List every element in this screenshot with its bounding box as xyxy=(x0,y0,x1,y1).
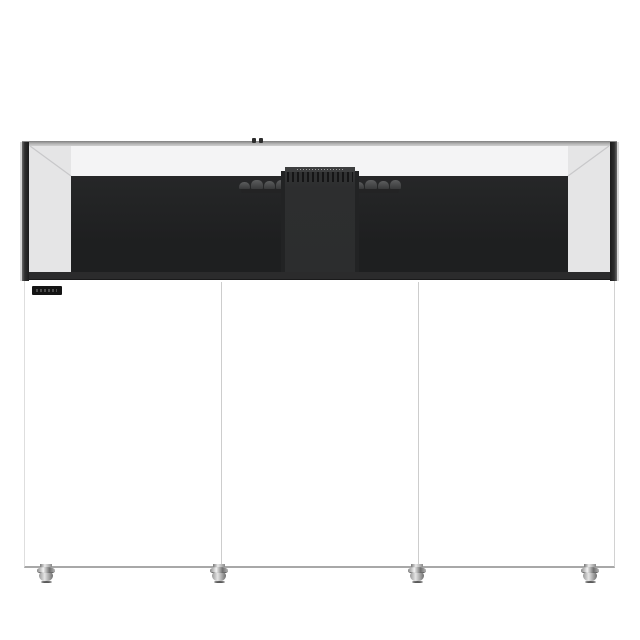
leveling-foot xyxy=(581,564,599,584)
brand-badge-text xyxy=(36,289,57,292)
overflow-comb-teeth xyxy=(287,172,353,182)
tank-right-outer-edge xyxy=(617,142,619,281)
tank-right-side-glass xyxy=(568,146,610,272)
leveling-foot xyxy=(408,564,426,584)
rim-clamp xyxy=(259,138,263,143)
tank-left-glass-edge xyxy=(22,142,29,281)
cabinet-door-seam-left xyxy=(221,282,222,567)
foot-dome xyxy=(583,573,597,581)
tank-left-side-glass xyxy=(29,146,71,272)
plumbing-fittings xyxy=(353,180,401,189)
rim-clamp xyxy=(252,138,256,143)
plumbing-base xyxy=(355,189,399,193)
foot-dome xyxy=(410,573,424,581)
tank-right-glass-edge xyxy=(610,142,617,281)
fitting xyxy=(365,180,376,189)
foot-base xyxy=(41,581,52,583)
plumbing-fittings xyxy=(239,180,287,189)
foot-dome xyxy=(39,573,53,581)
tank-bottom-trim xyxy=(29,272,610,280)
foot-base xyxy=(412,581,423,583)
fitting xyxy=(264,181,275,189)
return-plumbing-left xyxy=(239,179,287,193)
fitting xyxy=(390,180,401,189)
fitting xyxy=(239,182,250,189)
overflow-weir-box xyxy=(285,167,355,272)
fitting xyxy=(251,180,262,189)
foot-base xyxy=(214,581,225,583)
cabinet-stand xyxy=(24,281,615,568)
overflow-lid-vents xyxy=(297,169,343,170)
plumbing-base xyxy=(241,189,285,193)
foot-base xyxy=(585,581,596,583)
return-plumbing-right xyxy=(353,179,401,193)
brand-badge xyxy=(32,286,62,295)
overflow-wing-right xyxy=(355,171,359,272)
foot-dome xyxy=(212,573,226,581)
cabinet-door-seam-right xyxy=(418,282,419,567)
leveling-foot xyxy=(210,564,228,584)
fitting xyxy=(378,181,389,189)
product-photo xyxy=(0,0,640,640)
leveling-foot xyxy=(37,564,55,584)
